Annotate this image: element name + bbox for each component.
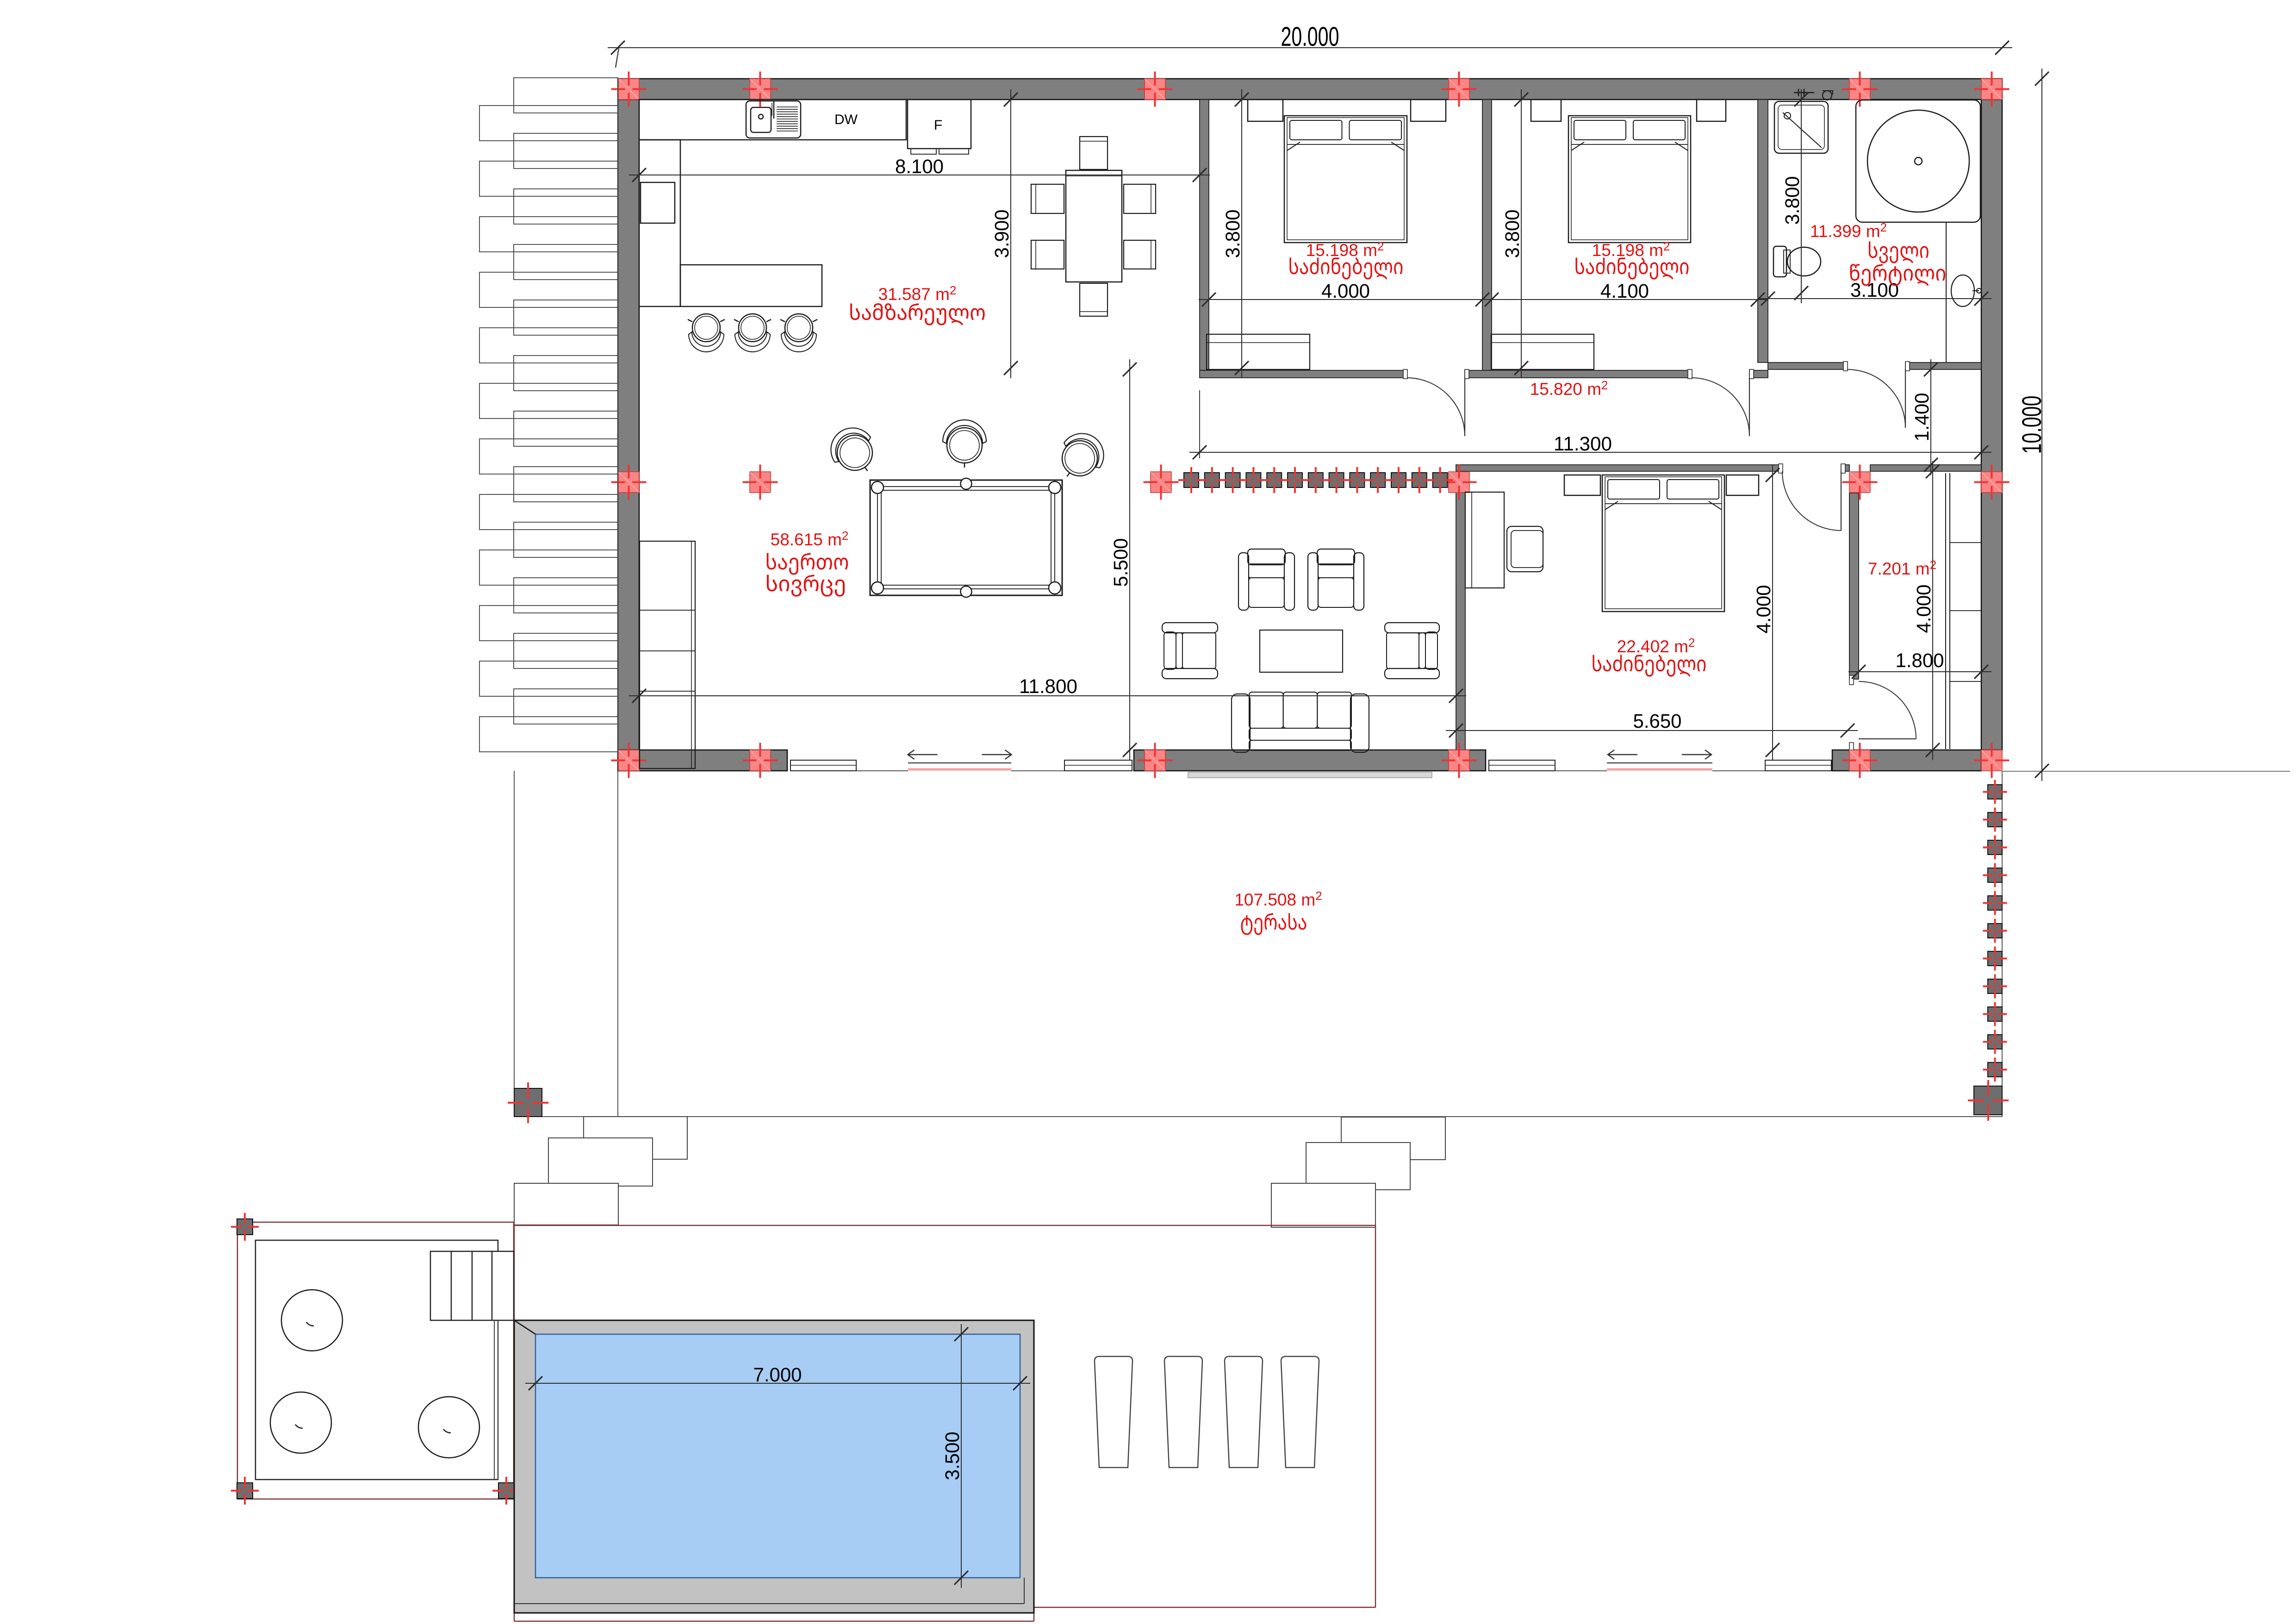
svg-text:3.500: 3.500 [941, 1432, 964, 1480]
svg-text:4.000: 4.000 [1913, 585, 1935, 633]
svg-text:11.800: 11.800 [1019, 675, 1077, 698]
svg-text:1.400: 1.400 [1911, 393, 1933, 442]
svg-text:31.587 m2: 31.587 m2 [878, 283, 957, 304]
svg-text:15.198 m2: 15.198 m2 [1306, 239, 1384, 260]
svg-text:11.300: 11.300 [1554, 433, 1612, 455]
svg-text:7.000: 7.000 [753, 1364, 802, 1386]
svg-text:107.508 m2: 107.508 m2 [1234, 889, 1322, 909]
svg-text:15.198 m2: 15.198 m2 [1592, 239, 1670, 260]
svg-text:DW: DW [834, 112, 858, 127]
svg-text:58.615 m2: 58.615 m2 [771, 529, 849, 549]
svg-text:8.100: 8.100 [895, 156, 944, 178]
svg-text:3.900: 3.900 [991, 210, 1013, 258]
svg-text:11.399 m2: 11.399 m2 [1810, 220, 1887, 241]
svg-text:4.100: 4.100 [1600, 280, 1649, 302]
svg-text:4.000: 4.000 [1753, 585, 1775, 634]
svg-text:4.000: 4.000 [1321, 280, 1370, 302]
svg-text:7.201 m2: 7.201 m2 [1868, 558, 1936, 578]
svg-text:15.820 m2: 15.820 m2 [1530, 378, 1608, 399]
svg-text:1.800: 1.800 [1896, 650, 1944, 672]
svg-text:20.000: 20.000 [1281, 22, 1339, 52]
svg-text:5.500: 5.500 [1110, 538, 1132, 587]
svg-text:3.800: 3.800 [1781, 176, 1804, 225]
svg-text:22.402 m2: 22.402 m2 [1617, 636, 1695, 656]
svg-text:10.000: 10.000 [2017, 396, 2047, 454]
svg-text:F: F [934, 118, 942, 133]
svg-text:3.800: 3.800 [1501, 210, 1524, 258]
svg-text:3.800: 3.800 [1222, 210, 1244, 258]
svg-text:5.650: 5.650 [1633, 710, 1682, 732]
